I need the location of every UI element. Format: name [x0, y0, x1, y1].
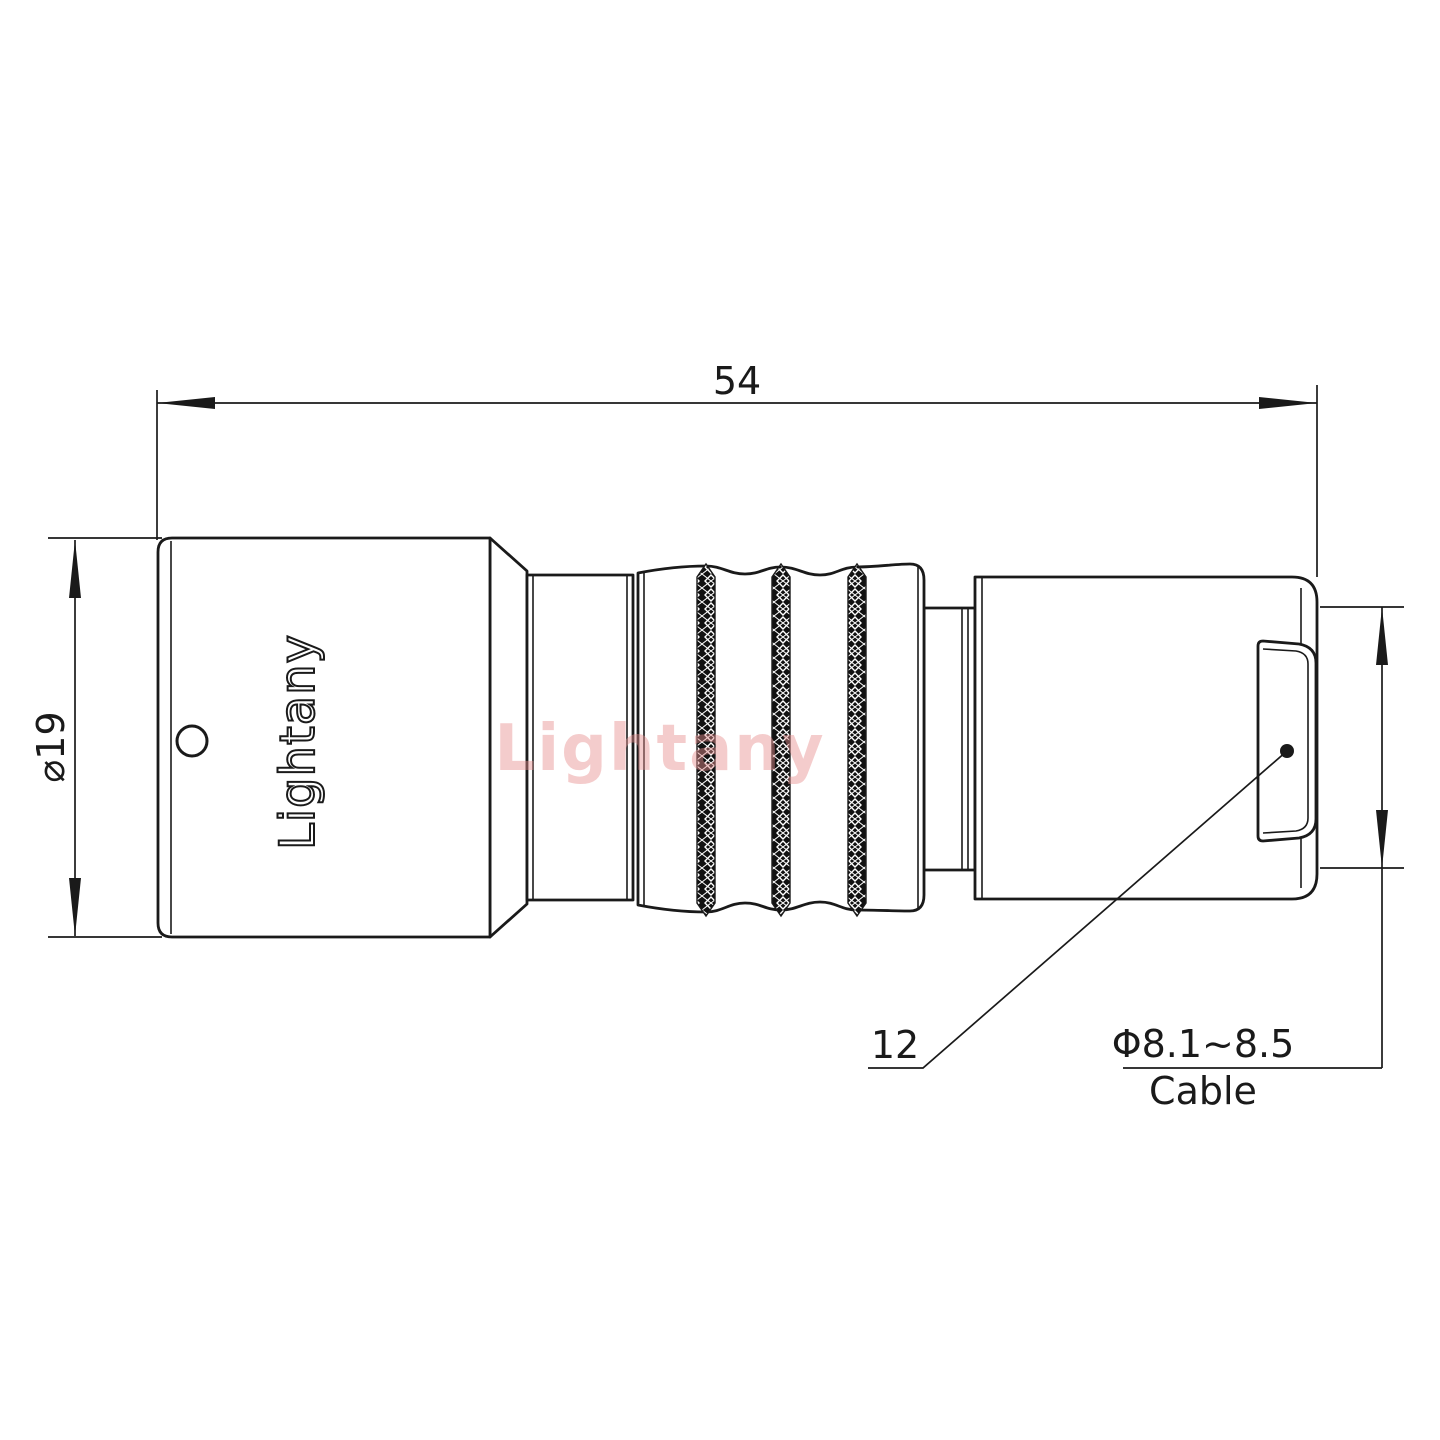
cable-arrow-top [1376, 607, 1388, 665]
cable-range-label: Φ8.1~8.5 [1112, 1022, 1295, 1066]
connector-technical-drawing: Lightany 54 ⌀19 Φ8.1~8.5 [0, 0, 1440, 1440]
bushing-size-label: 12 [871, 1023, 919, 1067]
diameter-arrow-bottom [69, 878, 81, 936]
technical-drawing-page: Lightany 54 ⌀19 Φ8.1~8.5 [0, 0, 1440, 1440]
knurl-ring-3 [848, 564, 866, 916]
cable-word-label: Cable [1149, 1069, 1257, 1113]
cable-arrow-bottom [1376, 810, 1388, 868]
length-arrow-left [157, 397, 215, 409]
brand-engraving: Lightany [270, 634, 326, 850]
diameter-arrow-top [69, 540, 81, 598]
cable-extension-lines [1320, 607, 1404, 868]
diameter-dimension-label: ⌀19 [29, 711, 73, 782]
locating-hole [177, 726, 207, 756]
length-dimension-label: 54 [713, 359, 761, 403]
length-arrow-right [1259, 397, 1317, 409]
watermark-text: Lightany [494, 712, 825, 786]
dimension-shell-diameter: ⌀19 [29, 538, 162, 937]
